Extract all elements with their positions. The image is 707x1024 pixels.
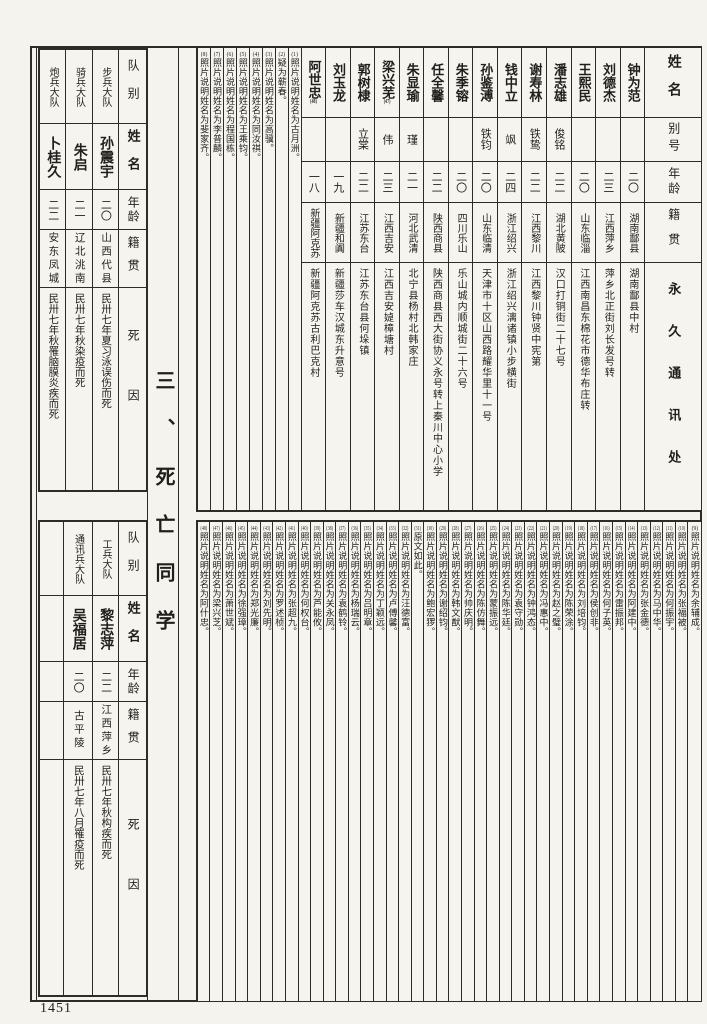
- footnote-column: (20)照片说明姓名为赵之璧。: [550, 522, 563, 1001]
- person-age: 二〇: [449, 162, 473, 204]
- footnote: (19)照片说明姓名为陈荣涂。: [563, 522, 575, 1001]
- footnote: (40)照片说明姓名为何权台。: [299, 522, 311, 1001]
- footnote: (38)照片说明姓名为关永凤。: [324, 522, 336, 1001]
- person-age-text: 二〇: [455, 171, 467, 193]
- footnote-column: (12)照片说明姓名为马中华。: [651, 522, 664, 1001]
- person-address: 江西黎川钟贤中宪第: [522, 263, 546, 510]
- footnote-text: (45)照片说明姓名为徐强璋。: [236, 526, 246, 637]
- death-name: 卜桂久: [40, 124, 65, 190]
- person-age-text: 二三: [602, 171, 614, 193]
- footnote-column: (9)照片说明姓名为余辅成。: [688, 522, 701, 1001]
- death-age: 二二: [40, 190, 65, 230]
- person-origin-text: 四川乐山: [455, 213, 466, 253]
- person-alias: 飒: [498, 118, 522, 162]
- footnote: (28)照片说明姓名为韩文猷。: [449, 522, 461, 1001]
- death-unit: [40, 522, 63, 596]
- footnote-column: (19)照片说明姓名为陈荣涂。: [563, 522, 576, 1001]
- death-age-text: 二〇: [99, 199, 111, 221]
- person-origin-text: 新疆阿克苏: [308, 208, 319, 258]
- person-origin: 陕西商县: [424, 203, 448, 263]
- person-alias: [326, 118, 350, 162]
- footnote-text: (46)照片说明姓名为萧世斌。: [224, 526, 234, 637]
- footnote: (6)照片说明姓名为程国栋。: [224, 48, 236, 510]
- footnote: (32)照片说明姓名为汪德富。: [399, 522, 411, 1001]
- footnote-number: (4): [252, 52, 259, 58]
- person-address-text: 汉口打铜街二十七号: [553, 268, 564, 367]
- person-address-text: 陕西商县西大街协义永号转上秦川中心小学: [431, 268, 442, 477]
- death-header-1: 姓名: [119, 596, 146, 662]
- footnote-column: (33)照片说明姓名为卢傅馨。: [387, 522, 400, 1001]
- person-name: 谢寿林: [522, 48, 546, 118]
- person-name: 朱显瑜: [400, 48, 424, 118]
- footnote-number: (43): [263, 526, 270, 532]
- death-age: 二二: [93, 662, 118, 702]
- footnote-number: (13): [640, 526, 647, 532]
- person-origin-text: 江西萍乡: [602, 213, 613, 253]
- death-age: 二〇: [93, 190, 118, 230]
- roster-person-column: 潘志雄俊铭二二湖北黄陂汉口打铜街二十七号: [547, 48, 572, 510]
- death-header-3: 籍贯: [119, 702, 146, 760]
- death-header-column: 队别姓名年龄籍贯死因: [119, 522, 146, 995]
- footnote: (15)照片说明姓名为雷振邦。: [613, 522, 625, 1001]
- person-address: 陕西商县西大街协义永号转上秦川中心小学: [424, 263, 448, 510]
- footnote-column: (38)照片说明姓名为关永凤。: [324, 522, 337, 1001]
- roster-person-column: 钱中立飒二四浙江绍兴浙江绍兴漓诸镇小步横街: [498, 48, 523, 510]
- footnote-text: (29)照片说明姓名为谢绍钧。: [437, 526, 447, 637]
- footnote-column: (21)照片说明姓名为冯惠中。: [537, 522, 550, 1001]
- footnote-number: (11): [665, 526, 672, 532]
- footnote: (27)照片说明姓名为帅庆明。: [462, 522, 474, 1001]
- person-address-text: 江西黎川钟贤中宪第: [529, 268, 540, 367]
- person-alias-text: 立棠: [356, 128, 368, 150]
- scanned-register-page: { "page": { "number": "1451", "section_t…: [0, 0, 707, 1024]
- footnote: (20)照片说明姓名为赵之璧。: [550, 522, 562, 1001]
- death-unit: 炮兵大队: [40, 50, 65, 124]
- footnote-number: (14): [628, 526, 635, 532]
- footnote: (2)疑为蕲春。: [276, 48, 288, 510]
- footnote-text: (15)照片说明姓名为雷振邦。: [614, 526, 624, 637]
- footnote-number: (9): [691, 526, 698, 532]
- person-address: 湖南酃县中村: [621, 263, 645, 510]
- footnote-number: (23): [514, 526, 521, 532]
- footnote-column: (29)照片说明姓名为谢绍钧。: [437, 522, 450, 1001]
- death-header-3-text: 籍贯: [126, 236, 139, 282]
- death-origin: 辽北洮南: [66, 230, 91, 288]
- person-origin: 江西吉安: [375, 203, 399, 263]
- person-name: 郭树棣: [351, 48, 375, 118]
- footnote-number: (22): [527, 526, 534, 532]
- footnote-text: (26)照片说明姓名为陈仿舞。: [475, 526, 485, 637]
- death-header-0-text: 队别: [126, 59, 139, 115]
- death-unit-text: 步兵大队: [100, 67, 111, 107]
- footnote-number: (18): [577, 526, 584, 532]
- person-address-text: 新疆莎车汉城东升意号: [332, 268, 343, 378]
- death-header-3-text: 籍贯: [126, 708, 139, 754]
- person-origin-text: 江西黎川: [529, 213, 540, 253]
- footnote-number: (20): [552, 526, 559, 532]
- roster-header-column: 姓名别号年龄籍贯永久通讯处: [645, 48, 701, 510]
- footnote-column: (31)原文如此。: [412, 522, 425, 1001]
- roster-person-column: 钟为范二〇湖南酃县湖南酃县中村: [621, 48, 646, 510]
- footnote: (24)照片说明姓名为陈华廷。: [500, 522, 512, 1001]
- death-origin: 山西代县: [93, 230, 118, 288]
- footnote-column: (15)照片说明姓名为雷振邦。: [613, 522, 626, 1001]
- footnote: (1)照片说明姓名为古月洲。: [289, 48, 301, 510]
- footnote-text: (6)照片说明姓名为程国栋。: [225, 52, 235, 163]
- footnote-number: (27): [464, 526, 471, 532]
- footnote-number: (45): [238, 526, 245, 532]
- footnote-text: (48)照片说明姓名为阿什忠。: [198, 526, 208, 637]
- footnote: (34)照片说明姓名为丁颖远。: [374, 522, 386, 1001]
- footnote-number: (46): [225, 526, 232, 532]
- person-origin: 河北武清: [400, 203, 424, 263]
- person-age: 二三: [596, 162, 620, 204]
- footnote-column: (40)照片说明姓名为何权台。: [299, 522, 312, 1001]
- footnote-text: (21)照片说明姓名为冯惠中。: [538, 526, 548, 637]
- person-origin-text: 江西吉安: [381, 213, 392, 253]
- footnote-number: (37): [338, 526, 345, 532]
- footnote-number: (48): [200, 526, 207, 532]
- person-age: 二三: [375, 162, 399, 204]
- death-name-text: 吴福居: [70, 608, 85, 650]
- footnote-text: (25)照片说明姓名为蒙振远。: [488, 526, 498, 637]
- person-age-text: 二三: [381, 171, 393, 193]
- person-age: 二〇: [473, 162, 497, 204]
- footnote-number: (25): [489, 526, 496, 532]
- death-origin-text: 古平陵: [72, 710, 84, 751]
- person-address: 萍乡北正街刘长发号转: [596, 263, 620, 510]
- person-name-text: 梁兴芜(47): [380, 60, 394, 105]
- footnote-text: (20)照片说明姓名为赵之璧。: [551, 526, 561, 637]
- person-name-text: 王熙民: [576, 63, 590, 102]
- person-origin-text: 湖北黄陂: [553, 213, 564, 253]
- person-origin-text: 新疆和阗: [332, 213, 343, 253]
- footnote-column: (27)照片说明姓名为帅庆明。: [462, 522, 475, 1001]
- death-age-text: 二一: [73, 199, 85, 221]
- person-origin: 江西黎川: [522, 203, 546, 263]
- person-name-text: 朱季镕: [453, 63, 467, 102]
- death-name-text: 朱启: [71, 143, 86, 171]
- footnote: (39)照片说明姓名为芦能攸。: [311, 522, 323, 1001]
- person-age: 二二: [351, 162, 375, 204]
- person-address-text: 北宁县杨村北韩家庄: [406, 268, 417, 367]
- footnote-column: (8)照片说明姓名为斐家齐。: [198, 48, 211, 510]
- roster-header-4-text: 永久通讯处: [666, 282, 680, 492]
- person-alias: [596, 118, 620, 162]
- person-alias-text: 铁鸷: [528, 128, 540, 150]
- footnote-text: (24)照片说明姓名为陈华廷。: [500, 526, 510, 637]
- footnote-column: (23)照片说明姓名为袁守勋。: [512, 522, 525, 1001]
- death-name-text: 卜桂久: [45, 136, 60, 178]
- roster-person-column: 王熙民二〇山东临淄江西南昌东棉花市德华布庄转: [572, 48, 597, 510]
- footnote-number: (26): [477, 526, 484, 532]
- footnote-column: (10)照片说明姓名为张福被。: [676, 522, 689, 1001]
- footnote-column: (18)照片说明姓名为刘培钧。: [575, 522, 588, 1001]
- footnote-text: (2)疑为蕲春。: [276, 52, 286, 106]
- footnote-column: (48)照片说明姓名为阿什忠。: [198, 522, 211, 1001]
- person-origin: 浙江绍兴: [498, 203, 522, 263]
- footnote: (48)照片说明姓名为阿什忠。: [198, 522, 210, 1001]
- person-name-text: 刘德杰: [601, 63, 615, 102]
- person-address-text: 江苏东台县何垛镇: [357, 268, 368, 356]
- footnote-text: (27)照片说明姓名为帅庆明。: [463, 526, 473, 637]
- footnote-text: (10)照片说明姓名为张福被。: [676, 526, 686, 637]
- page-frame: 队别姓名年龄籍贯死因步兵大队孙震宇二〇山西代县民卅七年夏习泳误伤而死骑兵大队朱启…: [30, 46, 702, 1002]
- person-origin-text: 浙江绍兴: [504, 213, 515, 253]
- person-origin: 江西萍乡: [596, 203, 620, 263]
- footnote-number: (36): [351, 526, 358, 532]
- footnote-column: (2)疑为蕲春。: [276, 48, 289, 510]
- person-address: 浙江绍兴漓诸镇小步横街: [498, 263, 522, 510]
- footnote-number: (35): [363, 526, 370, 532]
- footnote: (8)照片说明姓名为斐家齐。: [198, 48, 210, 510]
- footnote-text: (42)照片说明姓名为罗述桢。: [274, 526, 284, 637]
- death-origin-text: 辽北洮南: [73, 232, 85, 286]
- person-address-text: 天津市十区山西路耀华里十一号: [480, 268, 491, 422]
- footnote: (18)照片说明姓名为刘培钧。: [575, 522, 587, 1001]
- footnote: (43)照片说明姓名为刘先明。: [261, 522, 273, 1001]
- death-table-top: 队别姓名年龄籍贯死因步兵大队孙震宇二〇山西代县民卅七年夏习泳误伤而死骑兵大队朱启…: [38, 48, 148, 492]
- person-alias: [449, 118, 473, 162]
- death-cause: 民卅七年秋构疾而死: [93, 760, 118, 995]
- footnote-number: (1): [291, 52, 298, 58]
- person-age: 二四: [498, 162, 522, 204]
- person-address: 乐山城内顺城街二十六号: [449, 263, 473, 510]
- footnote: (14)照片说明姓名为阿建中。: [626, 522, 638, 1001]
- footnote-number: (17): [590, 526, 597, 532]
- person-address-text: 浙江绍兴漓诸镇小步横街: [504, 268, 515, 389]
- footnote-number: (32): [401, 526, 408, 532]
- roster-person-column: 朱显瑜瑾二一河北武清北宁县杨村北韩家庄: [400, 48, 425, 510]
- person-alias: 瑾: [400, 118, 424, 162]
- footnote: (23)照片说明姓名为袁守勋。: [512, 522, 524, 1001]
- person-origin: 湖南酃县: [621, 203, 645, 263]
- footnote-text: (36)照片说明姓名为杨瑞云。: [349, 526, 359, 637]
- footnote: (44)照片说明姓名为郑光廉。: [248, 522, 260, 1001]
- death-row-column: 工兵大队黎志萍二二江西萍乡民卅七年秋构疾而死: [93, 522, 119, 995]
- person-alias: 立棠: [351, 118, 375, 162]
- footnote-number: (28): [452, 526, 459, 532]
- footnote-text: (3)照片说明姓名为高骥。: [263, 52, 273, 153]
- person-origin: 新疆阿克苏: [302, 203, 326, 263]
- person-age-text: 二〇: [479, 171, 491, 193]
- death-unit-text: 通讯兵大队: [73, 534, 84, 584]
- roster-person-column: 刘德杰二三江西萍乡萍乡北正街刘长发号转: [596, 48, 621, 510]
- person-origin-text: 河北武清: [406, 213, 417, 253]
- death-cause: 民卅七年秋染疫而死: [66, 288, 91, 490]
- person-name: 朱季镕: [449, 48, 473, 118]
- person-address: 新疆莎车汉城东升意号: [326, 263, 350, 510]
- page-number: 1451: [40, 1001, 72, 1017]
- footnote-number: (30): [426, 526, 433, 532]
- roster-header-0-text: 姓名: [665, 54, 680, 110]
- roster-person-column: 任全馨二二陕西商县陕西商县西大街协义永号转上秦川中心小学: [424, 48, 449, 510]
- person-origin-text: 陕西商县: [431, 213, 442, 253]
- footnote-text: (40)照片说明姓名为何权台。: [299, 526, 309, 637]
- footnote: (10)照片说明姓名为张福被。: [676, 522, 688, 1001]
- person-age-text: 二〇: [577, 171, 589, 193]
- section-title: 三、死亡同学: [144, 344, 178, 684]
- footnote-text: (7)照片说明姓名为李普麟。: [212, 52, 222, 163]
- person-origin-text: 山东临清: [480, 213, 491, 253]
- roster-person-column: 梁兴芜(47)伟二三江西吉安江西吉安媫樟塘村: [375, 48, 400, 510]
- death-table-bottom: 队别姓名年龄籍贯死因工兵大队黎志萍二二江西萍乡民卅七年秋构疾而死通讯兵大队吴福居…: [38, 520, 148, 997]
- footnote-text: (12)照片说明姓名为马中华。: [651, 526, 661, 637]
- person-name-text: 钱中立: [503, 63, 517, 102]
- footnote-number: (15): [615, 526, 622, 532]
- person-age-text: 二〇: [626, 171, 638, 193]
- death-unit: 步兵大队: [93, 50, 118, 124]
- footnote-text: (35)照片说明姓名为吕明章。: [362, 526, 372, 637]
- divider-rule-right: [178, 48, 179, 1000]
- death-cause-text: 民卅七年夏习泳误伤而死: [100, 293, 112, 409]
- footnote-column: (47)照片说明姓名为梁兴芝。: [210, 522, 223, 1001]
- death-origin-text: 山西代县: [100, 232, 112, 286]
- footnote-text: (31)原文如此。: [412, 526, 422, 580]
- person-age: 二〇: [621, 162, 645, 204]
- person-name-text: 朱显瑜: [404, 63, 418, 102]
- death-header-4-text: 死因: [126, 329, 139, 449]
- footnote-text: (1)照片说明姓名为古月洲。: [289, 52, 299, 163]
- person-address: 江苏东台县何垛镇: [351, 263, 375, 510]
- footnote-column: (17)照片说明姓名为侯创非。: [588, 522, 601, 1001]
- person-name-text: 钟为范: [625, 63, 639, 102]
- footnote-column: (42)照片说明姓名为罗述桢。: [273, 522, 286, 1001]
- death-cause-text: 民卅七年秋罹脑膜炎疾而死: [47, 293, 59, 419]
- footnote-text: (16)照片说明姓名为何子英。: [601, 526, 611, 637]
- footnote-column: (13)照片说明姓名为张金德。: [638, 522, 651, 1001]
- person-address-text: 新疆阿克苏古利巴克村: [308, 268, 319, 378]
- death-age: 二〇: [64, 662, 92, 702]
- footnote: (3)照片说明姓名为高骥。: [263, 48, 275, 510]
- footnote: (13)照片说明姓名为张金德。: [638, 522, 650, 1001]
- person-alias: 铁鸷: [522, 118, 546, 162]
- person-origin: 江苏东台: [351, 203, 375, 263]
- person-age: 二〇: [572, 162, 596, 204]
- person-age: 一八: [302, 162, 326, 204]
- footnote-column: (1)照片说明姓名为古月洲。: [289, 48, 302, 510]
- person-address: 江西南昌东棉花市德华布庄转: [572, 263, 596, 510]
- footnote: (4)照片说明姓名为同汝祺。: [250, 48, 262, 510]
- death-origin: 古平陵: [64, 702, 92, 760]
- death-header-column: 队别姓名年龄籍贯死因: [119, 50, 146, 490]
- death-unit: 骑兵大队: [66, 50, 91, 124]
- death-row-column: 骑兵大队朱启二一辽北洮南民卅七年秋染疫而死: [66, 50, 92, 490]
- person-name: 王熙民: [572, 48, 596, 118]
- death-cause-text: 民卅七年秋构疾而死: [100, 765, 112, 860]
- roster-header-2-text: 年龄: [667, 167, 680, 197]
- person-origin: 湖北黄陂: [547, 203, 571, 263]
- death-name: 朱启: [66, 124, 91, 190]
- person-name-text: 郭树棣: [355, 63, 369, 102]
- roster-person-column: 谢寿林铁鸷二二江西黎川江西黎川钟贤中宪第: [522, 48, 547, 510]
- person-address-text: 乐山城内顺城街二十六号: [455, 268, 466, 389]
- death-origin-text: 江西萍乡: [100, 704, 112, 758]
- footnote-text: (41)照片说明姓名为张超九。: [287, 526, 297, 637]
- person-address-text: 萍乡北正街刘长发号转: [602, 268, 613, 378]
- footnote: (33)照片说明姓名为卢傅馨。: [387, 522, 399, 1001]
- person-name: 钱中立: [498, 48, 522, 118]
- person-origin: 四川乐山: [449, 203, 473, 263]
- footnote-text: (47)照片说明姓名为梁兴芝。: [211, 526, 221, 637]
- death-name: 孙震宇: [93, 124, 118, 190]
- death-name: 吴福居: [64, 596, 92, 662]
- roster-header-0: 姓名: [645, 48, 701, 118]
- death-origin: 江西萍乡: [93, 702, 118, 760]
- death-row-column: [40, 522, 64, 995]
- inner-left-rule: [36, 48, 37, 1000]
- footnote-column: (4)照片说明姓名为同汝祺。: [250, 48, 263, 510]
- footnote: (21)照片说明姓名为冯惠中。: [537, 522, 549, 1001]
- footnote: (42)照片说明姓名为罗述桢。: [273, 522, 285, 1001]
- person-name: 潘志雄: [547, 48, 571, 118]
- person-age-text: 二二: [553, 171, 565, 193]
- footnote: (46)照片说明姓名为萧世斌。: [223, 522, 235, 1001]
- footnote-column: (35)照片说明姓名为吕明章。: [361, 522, 374, 1001]
- person-name: 孙鉴溥: [473, 48, 497, 118]
- footnote-column: (45)照片说明姓名为徐强璋。: [236, 522, 249, 1001]
- footnote-column: (25)照片说明姓名为蒙振远。: [487, 522, 500, 1001]
- person-alias: [424, 118, 448, 162]
- person-age: 二二: [547, 162, 571, 204]
- footnote-column: (43)照片说明姓名为刘先明。: [261, 522, 274, 1001]
- death-age: [40, 662, 63, 702]
- footnote-number: (12): [653, 526, 660, 532]
- person-note-mark: (47): [384, 99, 391, 105]
- footnote-column: (46)照片说明姓名为萧世斌。: [223, 522, 236, 1001]
- death-cause-text: 民卅七年八月罹疫而死: [72, 765, 84, 870]
- person-origin-text: 湖南酃县: [627, 213, 638, 253]
- roster-person-column: 孙鉴溥铁钧二〇山东临清天津市十区山西路耀华里十一号: [473, 48, 498, 510]
- death-unit-text: 炮兵大队: [47, 67, 58, 107]
- death-header-1-text: 姓名: [125, 129, 139, 185]
- person-name: 阿世忠(48): [302, 48, 326, 118]
- person-name-text: 任全馨: [429, 63, 443, 102]
- footnote-column: (3)照片说明姓名为高骥。: [263, 48, 276, 510]
- roster-person-column: 郭树棣立棠二二江苏东台江苏东台县何垛镇: [351, 48, 376, 510]
- death-age: 二一: [66, 190, 91, 230]
- roster-header-2: 年龄: [645, 162, 701, 204]
- footnote-number: (38): [326, 526, 333, 532]
- person-age: 二二: [522, 162, 546, 204]
- footnote: (5)照片说明姓名为王乘钧。: [237, 48, 249, 510]
- footnote-number: (21): [540, 526, 547, 532]
- footnote-number: (41): [288, 526, 295, 532]
- person-origin-text: 山东临淄: [578, 213, 589, 253]
- death-header-4: 死因: [119, 760, 146, 995]
- footnote-column: (16)照片说明姓名为何子英。: [600, 522, 613, 1001]
- person-note-mark: (48): [310, 99, 317, 105]
- roster-header-4: 永久通讯处: [645, 263, 701, 510]
- footnote-number: (10): [678, 526, 685, 532]
- footnote-column: (22)照片说明姓名为钟鸿态。: [525, 522, 538, 1001]
- footnote-number: (47): [213, 526, 220, 532]
- footnote-column: (34)照片说明姓名为丁颖远。: [374, 522, 387, 1001]
- footnote-text: (11)照片说明姓名为何振宇。: [664, 526, 674, 637]
- footnote-number: (6): [226, 52, 233, 58]
- footnote-number: (42): [275, 526, 282, 532]
- footnote-column: (39)照片说明姓名为芦能攸。: [311, 522, 324, 1001]
- death-origin-text: 安东凤城: [47, 232, 59, 286]
- footnote-text: (34)照片说明姓名为丁颖远。: [375, 526, 385, 637]
- person-age: 一九: [326, 162, 350, 204]
- footnote-text: (14)照片说明姓名为阿建中。: [626, 526, 636, 637]
- footnote-text: (5)照片说明姓名为王乘钧。: [238, 52, 248, 163]
- death-name: [40, 596, 63, 662]
- footnote-column: (5)照片说明姓名为王乘钧。: [237, 48, 250, 510]
- person-origin-text: 江苏东台: [357, 213, 368, 253]
- death-cause: 民卅七年八月罹疫而死: [64, 760, 92, 995]
